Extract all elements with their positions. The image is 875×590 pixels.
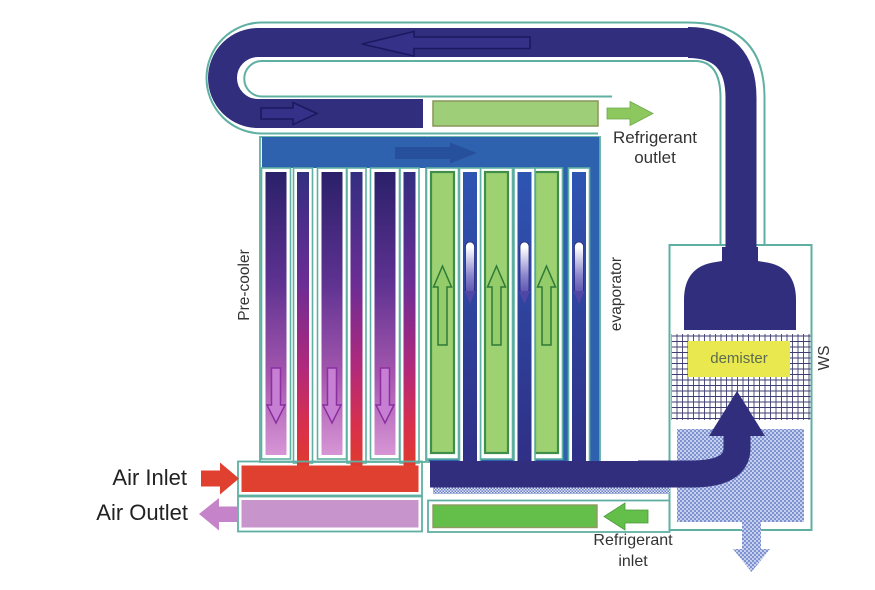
air-ducts <box>199 462 422 532</box>
refrigerant-outlet-bar <box>433 101 598 126</box>
condensate-header-bar <box>430 461 670 488</box>
refrigerant-inlet-label: Refrigerant inlet <box>572 530 694 572</box>
air-outlet-label: Air Outlet <box>42 500 188 526</box>
refrigerant-inlet-duct <box>428 501 670 533</box>
refrigerant-inlet-arrow-icon <box>604 503 648 530</box>
air-outlet-arrow-icon <box>199 498 238 531</box>
refrigerant-outlet-arrow-icon <box>607 102 653 126</box>
precooler-tubes <box>262 168 420 467</box>
demister-label: demister <box>689 350 789 367</box>
refrigerant-outlet-label: Refrigerant outlet <box>594 128 716 168</box>
refrigerant-outlet-line1: Refrigerant <box>613 128 697 147</box>
air-outlet-bar <box>242 500 419 528</box>
condensate-dither-strip <box>433 488 670 495</box>
refrigerant-inlet-line1: Refrigerant <box>593 532 672 549</box>
ws-label: WS <box>816 328 834 388</box>
air-inlet-bar <box>242 466 419 493</box>
diagram-canvas: Refrigerant outlet Refrigerant inlet Air… <box>0 0 875 590</box>
evaporator-label: evaporator <box>608 234 626 354</box>
precooler-label: Pre-cooler <box>236 225 254 345</box>
water-drain-shaft <box>742 520 761 551</box>
air-inlet-arrow-icon <box>201 463 239 495</box>
refrigerant-outlet-line2: outlet <box>634 148 676 167</box>
refrigerant-inlet-bar <box>433 505 597 528</box>
air-inlet-label: Air Inlet <box>55 465 187 491</box>
water-drain-arrow-icon <box>733 549 770 572</box>
refrigerant-inlet-line2: inlet <box>618 553 647 570</box>
